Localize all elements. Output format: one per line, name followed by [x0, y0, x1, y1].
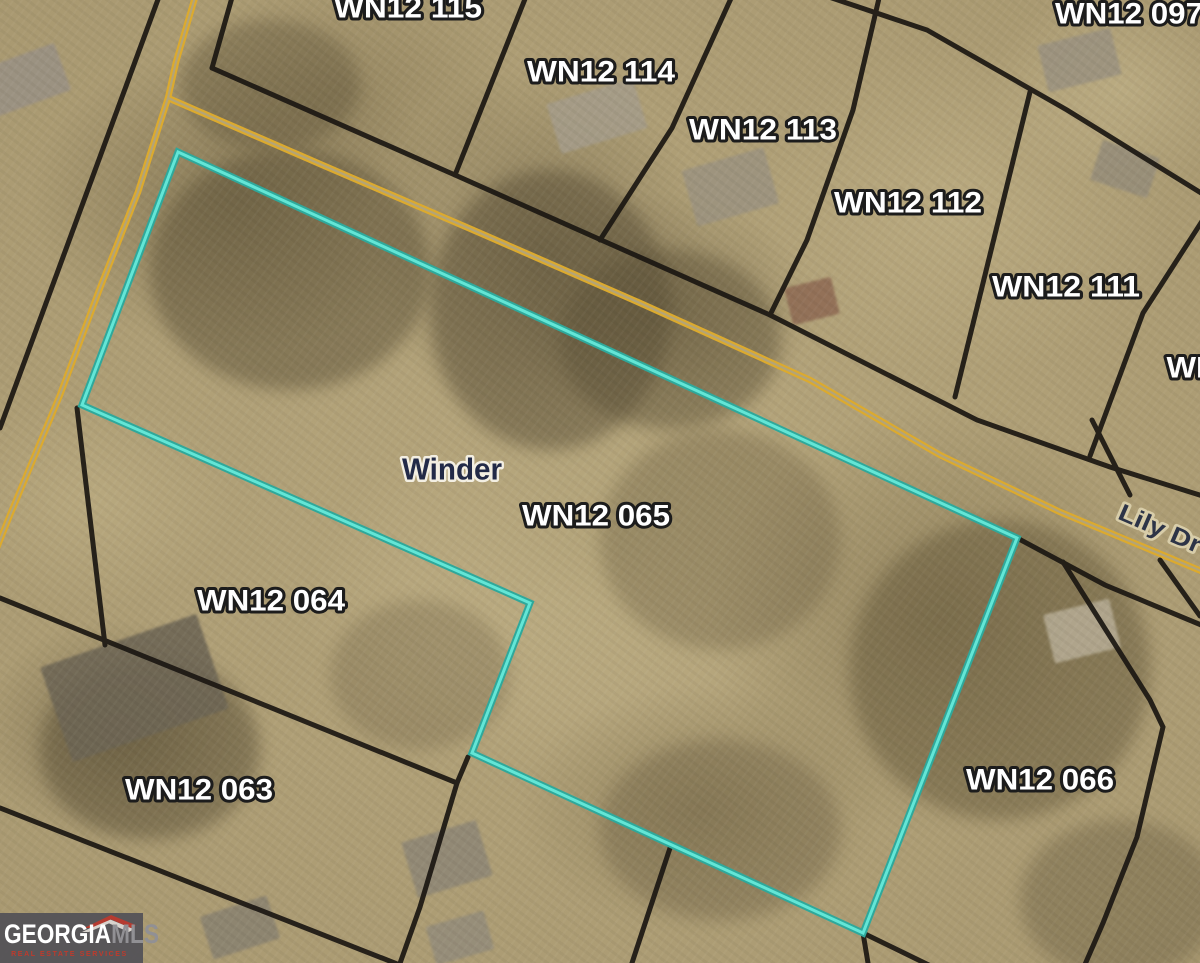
parcel-boundary-lines	[0, 0, 1200, 963]
map-viewport: WN12 115 WN12 114 WN12 113 WN12 112 WN12…	[0, 0, 1200, 963]
watermark-brand-primary: GEORGIA	[4, 919, 111, 949]
parcel-boundary-line	[1063, 562, 1163, 963]
parcel-boundary-line	[863, 933, 937, 963]
parcel-boundary-line	[955, 92, 1030, 397]
parcel-label: WN12 097	[1055, 0, 1200, 31]
city-label: Winder	[402, 452, 502, 487]
watermark-tagline: REAL ESTATE SERVICES	[0, 951, 139, 958]
parcel-boundary-line	[77, 408, 105, 645]
parcel-label: WN12 112	[834, 187, 982, 220]
parcel-label: WN12 063	[125, 774, 273, 807]
parcel-boundary-line	[0, 598, 457, 783]
parcel-label: WN12	[1167, 352, 1200, 385]
parcel-label: WN12 114	[527, 56, 675, 89]
parcel-label: WN12 066	[966, 764, 1114, 797]
georgia-mls-watermark: GEORGIAMLS REAL ESTATE SERVICES	[0, 913, 143, 963]
parcel-boundary-line	[0, 0, 160, 428]
parcel-boundary-line	[1017, 538, 1200, 627]
parcel-boundary-line	[1090, 215, 1200, 456]
parcel-boundary-line	[455, 0, 527, 175]
parcel-map-overlay: WN12 115 WN12 114 WN12 113 WN12 112 WN12…	[0, 0, 1200, 963]
parcel-labels: WN12 115 WN12 114 WN12 113 WN12 112 WN12…	[125, 0, 1200, 807]
parcel-boundary-line	[212, 0, 233, 68]
parcel-label: WN12 113	[689, 114, 837, 147]
parcel-boundary-line	[1092, 420, 1130, 495]
parcel-label: WN12 115	[334, 0, 482, 25]
parcel-label-highlighted: WN12 065	[522, 500, 670, 533]
parcel-label: WN12 111	[992, 271, 1140, 304]
parcel-boundary-line	[398, 757, 468, 963]
highlighted-parcel-boundary	[82, 152, 1017, 933]
highlight-core	[82, 152, 1017, 933]
parcel-label: WN12 064	[197, 585, 345, 618]
parcel-boundary-line	[630, 848, 670, 963]
watermark-brand: GEORGIAMLS	[4, 921, 159, 948]
road-centerline	[168, 98, 1200, 573]
parcel-boundary-line	[770, 0, 880, 315]
watermark-brand-secondary: MLS	[111, 919, 159, 949]
highlight-outline	[82, 152, 1017, 933]
road-centerline	[0, 0, 196, 555]
